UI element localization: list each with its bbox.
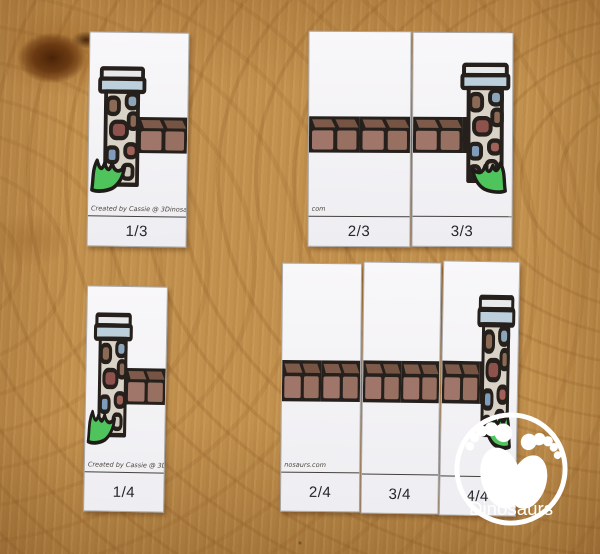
- wall-icon: [282, 360, 321, 402]
- fraction-label: 2/3: [348, 223, 370, 240]
- credit-text: [413, 203, 512, 217]
- fraction-label-area: 2/4: [281, 472, 359, 512]
- fraction-card-1-4: Created by Cassie @ 3D 1/4: [83, 285, 168, 512]
- castle-tower-art: [88, 32, 188, 203]
- fraction-label: 3/4: [388, 485, 411, 502]
- fraction-card-3-3: 3/3: [411, 32, 513, 248]
- wall-icon: [413, 117, 463, 153]
- castle-wall-art: [281, 264, 361, 460]
- wall-icon: [359, 116, 410, 152]
- fraction-label-area: 3/4: [361, 474, 437, 514]
- fraction-label: 2/4: [309, 483, 332, 500]
- wall-icon: [401, 361, 440, 403]
- castle-wall-art: [309, 32, 411, 204]
- wall-icon: [363, 360, 402, 402]
- fraction-label-area: 3/3: [412, 216, 511, 247]
- fraction-card-2-3: com 2/3: [307, 31, 411, 248]
- fraction-label: 1/3: [125, 223, 148, 240]
- castle-tower-art: [413, 33, 513, 204]
- three-dinosaurs-watermark: 3 Dinosaurs: [452, 410, 570, 528]
- fraction-label-area: 2/3: [308, 216, 409, 247]
- credit-text: nosaurs.com: [281, 459, 359, 473]
- fraction-label-area: 1/4: [84, 471, 164, 511]
- fraction-card-3-4: 3/4: [360, 262, 441, 515]
- castle-tower-art: [85, 286, 167, 459]
- fraction-label: 3/3: [451, 223, 473, 240]
- fraction-label-area: 1/3: [88, 215, 186, 246]
- fraction-card-2-4: nosaurs.com 2/4: [280, 263, 362, 513]
- fraction-card-1-3: Created by Cassie @ 3Dinosaurs. 1/3: [87, 31, 190, 247]
- logo-number: 3: [500, 469, 516, 502]
- credit-text: com: [309, 203, 410, 217]
- photo-scene: Created by Cassie @ 3Dinosaurs. 1/3 com …: [0, 0, 600, 554]
- wall-icon: [125, 368, 165, 405]
- credit-text: [362, 461, 438, 475]
- logo-name: Dinosaurs: [469, 498, 553, 519]
- fraction-label: 1/4: [113, 483, 136, 500]
- wall-icon: [309, 116, 360, 152]
- castle-wall-art: [362, 263, 440, 462]
- wall-icon: [138, 117, 187, 154]
- wall-icon: [321, 360, 360, 402]
- wall-icon: [442, 361, 480, 404]
